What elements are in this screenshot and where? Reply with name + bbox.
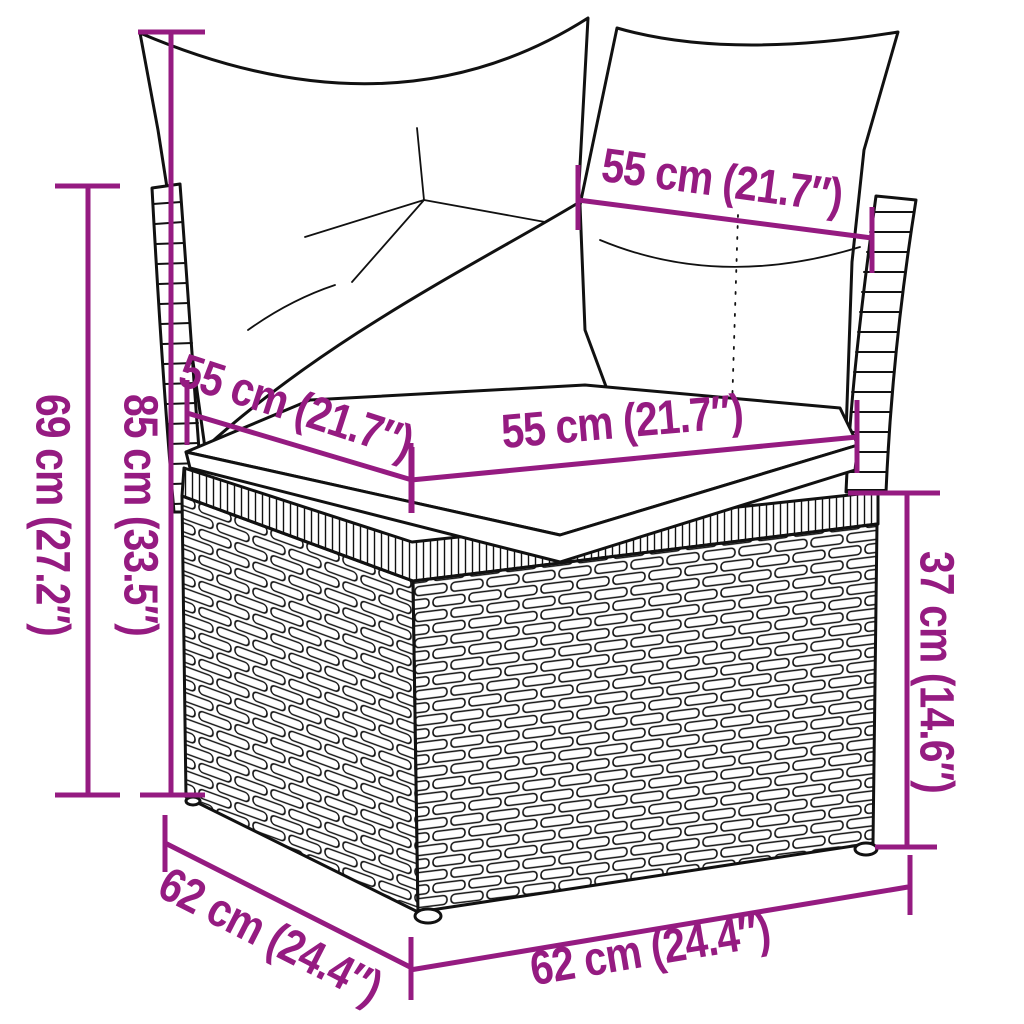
dim-label-outer-height: 69 cm (27.2″) [26,394,79,636]
dimension-diagram: 85 cm (33.5″) 69 cm (27.2″) 37 cm (14.6″… [0,0,1024,1024]
base-foot [186,797,200,805]
dim-label-base-width: 62 cm (24.4″) [526,904,773,996]
dim-label-back-height: 85 cm (33.5″) [114,394,167,636]
dim-label-base-height: 37 cm (14.6″) [910,551,963,793]
base-foot [415,909,441,923]
diagram-canvas: 85 cm (33.5″) 69 cm (27.2″) 37 cm (14.6″… [0,0,1024,1024]
base-face-front [413,524,877,912]
base-foot [855,843,877,855]
